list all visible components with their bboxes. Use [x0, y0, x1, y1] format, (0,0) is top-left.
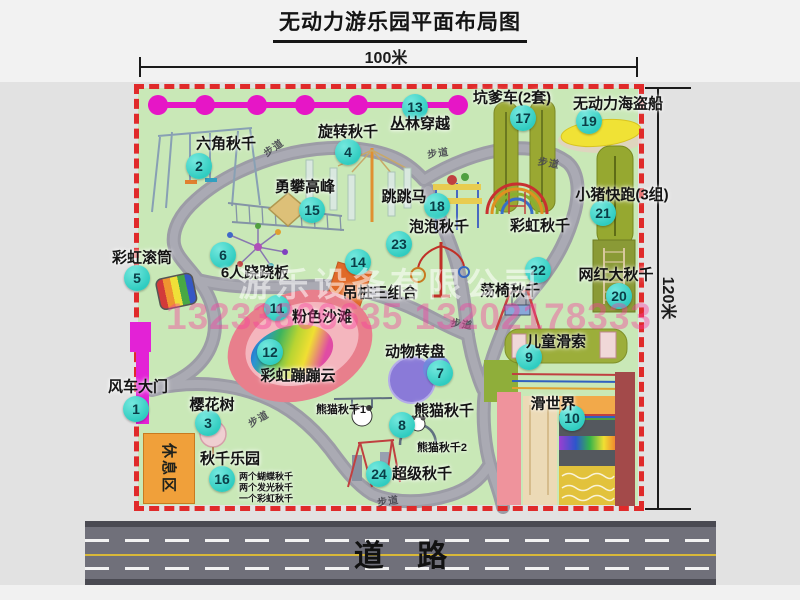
seesaw-icon [227, 223, 288, 269]
park-layout-poster: 无动力游乐园平面布局图 100米 120米 [0, 0, 800, 600]
slide-world-icon [497, 372, 635, 506]
piggy-run-icon [597, 146, 633, 246]
big-swing-icon [593, 240, 635, 312]
rest-area-label: 休息区 [159, 443, 180, 494]
pirate-ship-icon [558, 116, 642, 153]
zipline-icon [148, 95, 468, 115]
road-label: 道 路 [354, 531, 447, 575]
rest-area-box: 休息区 [143, 433, 195, 504]
kids-zipline-icon [484, 329, 628, 402]
road: 道 路 [85, 521, 716, 585]
rope-climb-icon [228, 193, 344, 231]
road-edge-top [85, 521, 716, 527]
panda-swing-icon [334, 398, 436, 445]
map-decorations [0, 0, 800, 600]
rainbow-drum-icon [155, 272, 198, 310]
super-swing-icon [348, 440, 400, 487]
animal-turntable-icon [389, 355, 451, 403]
cherry-tree-icon [200, 421, 226, 456]
road-edge-bottom [85, 579, 716, 585]
